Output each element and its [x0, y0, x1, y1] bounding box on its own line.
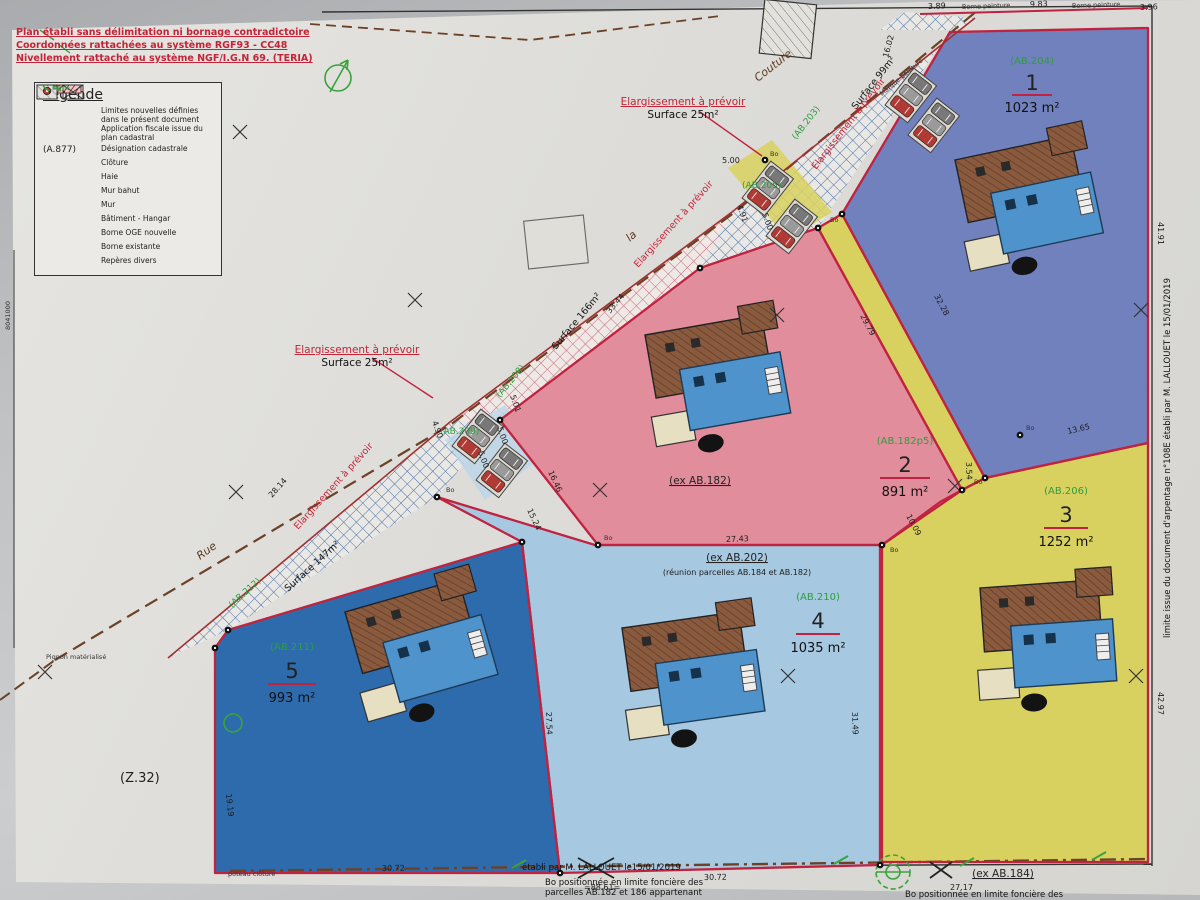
cadastral-ref-swatch: (A.877) — [43, 145, 101, 155]
map-label: 41.91 — [1156, 222, 1165, 245]
parcel-3-ref: (AB.206) — [1044, 486, 1088, 497]
legend-item-batiment: Bâtiment - Hangar — [43, 213, 215, 226]
map-label: Bo — [604, 534, 612, 542]
bottom-note-1b: parcelles AB.182 et 186 appartenant — [545, 888, 703, 898]
annotation-widening-left-title: Elargissement à prévoir — [272, 344, 442, 357]
map-label: Pignon matérialisé — [46, 653, 106, 661]
bo-monument-dot — [519, 539, 526, 546]
map-label: 31.49 — [850, 712, 860, 735]
parcel-4-area-label: 1035 m² — [790, 641, 845, 656]
side-note: limite issue du document d'arpentage n°1… — [1162, 278, 1173, 638]
bo-monument-dot — [595, 542, 602, 549]
legend-item-cloture: Clôture — [43, 157, 215, 170]
zone-z32-label: (Z.32) — [120, 771, 160, 786]
parcel-1-num: 1 — [1025, 71, 1038, 95]
bo-monument-dot — [762, 157, 769, 164]
ex-ab182-label: (ex AB.182) — [669, 475, 731, 487]
bo-monument-dot — [877, 862, 884, 869]
ex-ab202-sub-label: (réunion parcelles AB.184 et AB.182) — [663, 567, 811, 577]
legend-item-borne-existante: Borne Borne existante — [43, 241, 215, 254]
map-label: Bo — [830, 216, 838, 224]
grid-cross — [233, 125, 247, 139]
map-label: (AB.203) — [790, 105, 822, 142]
map-label: 27.43 — [726, 534, 749, 544]
bo-monument-dot — [959, 487, 966, 494]
legend-item-haie: Haie — [43, 171, 215, 184]
map-label: Borne peinture — [962, 1, 1011, 11]
legend-item-designation: (A.877) Désignation cadastrale — [43, 143, 215, 156]
map-label: 42.97 — [1156, 692, 1165, 715]
map-label: 30.72 — [704, 873, 727, 882]
annotation-widening-left: Elargissement à prévoir Surface 25m² — [272, 344, 442, 370]
grid-cross — [408, 293, 422, 307]
legend-item-mur-bahut: Mur bahut — [43, 185, 215, 198]
parcel-2-ref: (AB.182p5) — [877, 436, 934, 447]
legend-item-borne-oge: Bo Borne OGE nouvelle — [43, 227, 215, 240]
map-label: (AB.209) — [440, 427, 479, 437]
legend-box: Légende Limites nouvelles définies dans … — [34, 82, 222, 276]
bo-monument-dot — [982, 475, 989, 482]
parcel-5-ref: (AB.211) — [270, 642, 314, 653]
map-label: (AB.205) — [742, 181, 781, 191]
map-label: Rue — [194, 539, 219, 562]
ex-ab202-label: (ex AB.202) — [706, 552, 768, 564]
parcel-2-num: 2 — [898, 453, 911, 477]
parcel-4-num: 4 — [811, 609, 824, 633]
bo-monument-dot — [839, 211, 846, 218]
map-label: 9.83 — [1030, 0, 1048, 9]
map-label: 27.54 — [544, 712, 554, 735]
bottom-note-2: Bo positionnée en limite foncière des — [905, 889, 1064, 900]
parcel-1-ref: (AB.204) — [1010, 56, 1054, 67]
map-label: 30.72 — [382, 864, 405, 873]
bo-monument-dot — [1017, 432, 1024, 439]
map-label: 8041000 — [4, 301, 12, 330]
parcel-4-ref: (AB.210) — [796, 592, 840, 603]
disclaimer-line-2: Coordonnées rattachées au système RGF93 … — [16, 39, 313, 52]
map-label: 28.14 — [267, 476, 289, 499]
disclaimer-line-1: Plan établi sans délimitation ni bornage… — [16, 26, 313, 39]
map-label: Bo — [770, 150, 778, 158]
bo-monument-dot — [225, 627, 232, 634]
bottom-strike-text: établi par M. LALLOUET le15/01/2019 — [522, 862, 681, 873]
map-label: 3.89 — [928, 1, 946, 11]
legend-item-new-limits: Limites nouvelles définies dans le prése… — [43, 107, 215, 124]
map-label: Bo — [974, 478, 982, 486]
disclaimer-line-3: Nivellement rattaché au système NGF/I.G.… — [16, 52, 313, 65]
plan-disclaimer-notes: Plan établi sans délimitation ni bornage… — [16, 26, 313, 65]
map-label: poteau clôture — [228, 870, 275, 878]
map-label: Bo — [1026, 424, 1034, 432]
annotation-widening-left-surface: Surface 25m² — [272, 357, 442, 370]
grid-cross — [229, 485, 243, 499]
bo-monument-dot — [497, 417, 504, 424]
legend-item-reperes: Repères divers — [43, 255, 215, 268]
parcel-3-num: 3 — [1059, 503, 1072, 527]
bottom-note-1a: Bo positionnée en limite foncière des — [545, 877, 704, 888]
map-label: Borne peinture — [1072, 0, 1121, 10]
bo-monument-dot — [815, 225, 822, 232]
bo-monument-dot — [212, 645, 219, 652]
bo-monument-dot — [879, 542, 886, 549]
parcel-5-num: 5 — [285, 659, 298, 683]
parcel-2-area-label: 891 m² — [882, 485, 929, 500]
map-label: 3.54 — [964, 462, 974, 480]
annotation-widening-top-surface: Surface 25m² — [598, 109, 768, 122]
ex-ab184-label: (ex AB.184) — [972, 868, 1034, 880]
bo-monument-dot — [697, 265, 704, 272]
map-label: 5.00 — [722, 156, 740, 165]
map-label: Bo — [446, 486, 454, 494]
bo-monument-dot — [434, 494, 441, 501]
legend-item-fiscal: Application fiscale issue du plan cadast… — [43, 125, 215, 142]
north-arrow — [325, 60, 351, 92]
photographed-cadastral-plan: { "notes": { "line1": "Plan établi sans … — [0, 0, 1200, 900]
map-label: 3.96 — [1140, 2, 1158, 12]
annotation-widening-top-title: Elargissement à prévoir — [598, 96, 768, 109]
parcel-5-area-label: 993 m² — [269, 691, 316, 706]
map-label: la — [623, 228, 639, 244]
map-label: Bo — [890, 546, 898, 554]
parcel-1-area-label: 1023 m² — [1004, 101, 1059, 116]
annotation-widening-top: Elargissement à prévoir Surface 25m² — [598, 96, 768, 122]
legend-item-mur: Mur — [43, 199, 215, 212]
parcel-3-area-label: 1252 m² — [1038, 535, 1093, 550]
